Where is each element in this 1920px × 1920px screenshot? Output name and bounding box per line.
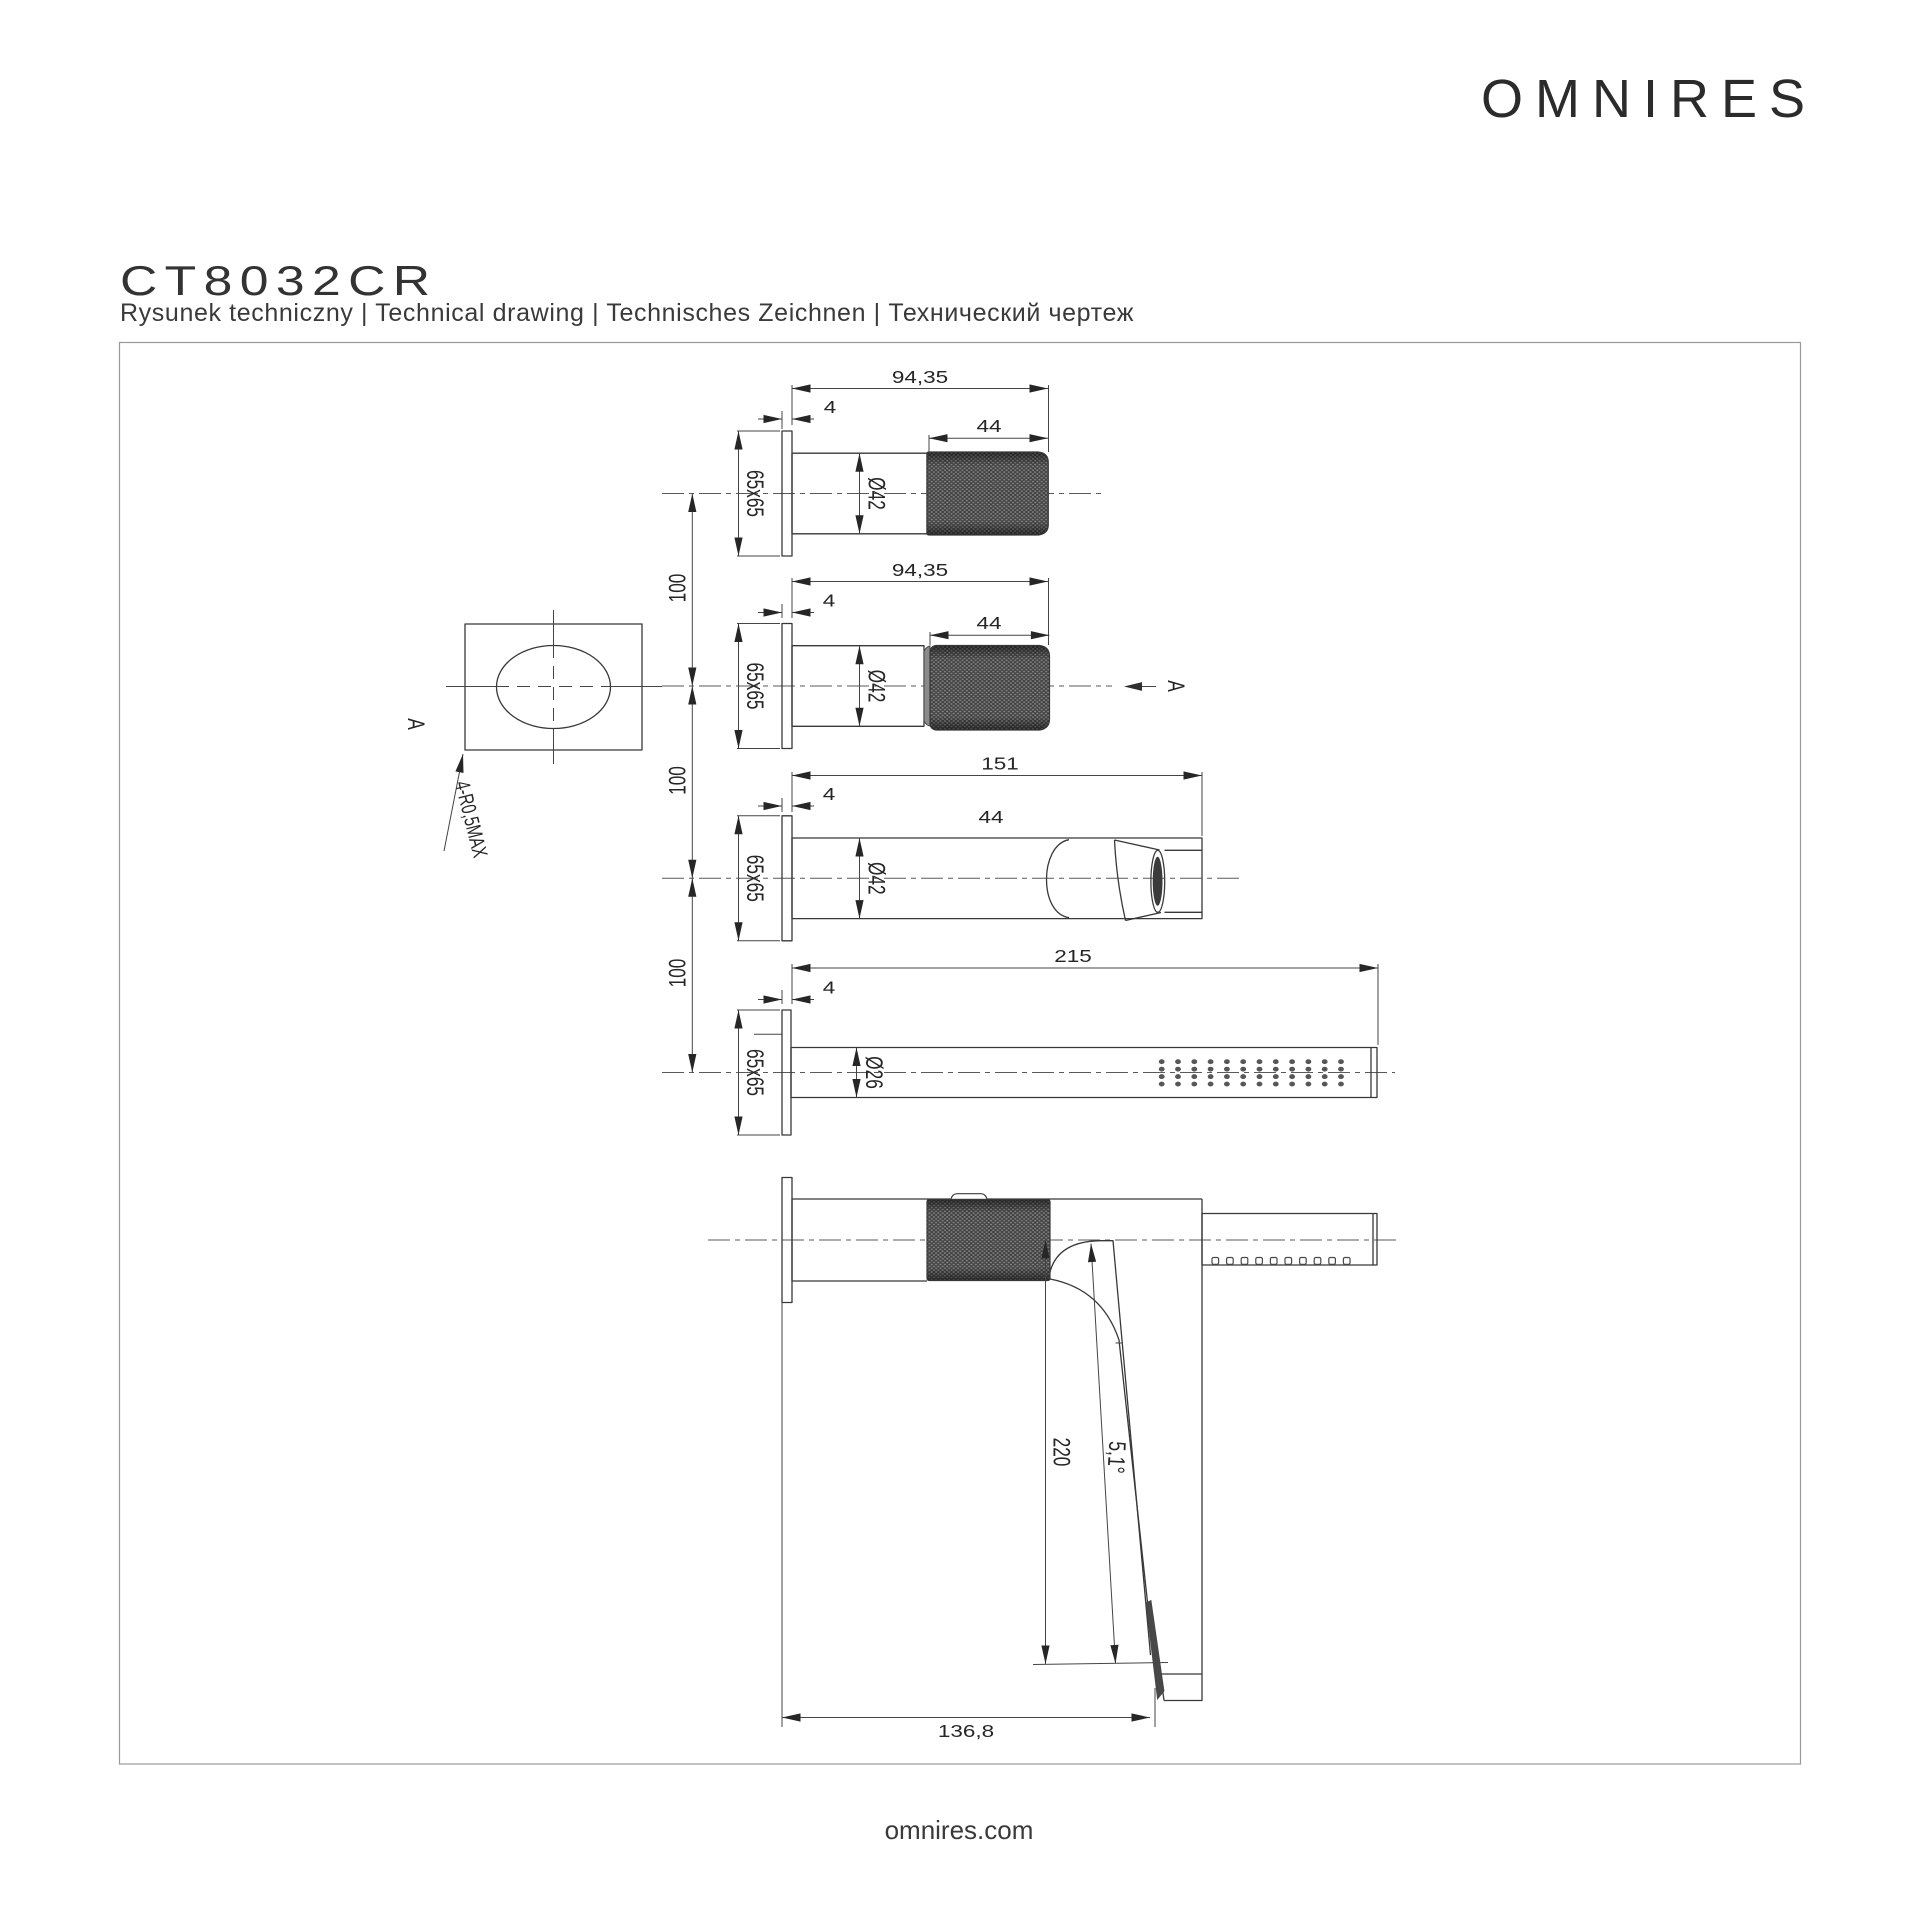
svg-text:65x65: 65x65 — [741, 1049, 767, 1096]
svg-text:5,1°: 5,1° — [1102, 1441, 1130, 1475]
svg-text:4-R0,5MAX: 4-R0,5MAX — [451, 778, 493, 860]
svg-text:100: 100 — [665, 574, 691, 603]
svg-text:Ø42: Ø42 — [863, 862, 889, 895]
svg-text:4: 4 — [823, 591, 836, 610]
svg-text:94,35: 94,35 — [892, 368, 948, 387]
svg-text:136,8: 136,8 — [938, 1722, 994, 1741]
svg-text:94,35: 94,35 — [892, 561, 948, 580]
svg-text:65x65: 65x65 — [741, 855, 767, 902]
svg-text:4: 4 — [823, 978, 836, 997]
svg-text:4: 4 — [824, 398, 837, 417]
svg-text:Ø42: Ø42 — [863, 477, 889, 510]
svg-text:65x65: 65x65 — [741, 470, 767, 517]
svg-text:100: 100 — [665, 766, 691, 795]
svg-text:65x65: 65x65 — [741, 662, 767, 709]
svg-text:A: A — [402, 718, 428, 730]
svg-text:4: 4 — [823, 785, 836, 804]
svg-text:100: 100 — [665, 959, 691, 988]
svg-text:220: 220 — [1048, 1438, 1074, 1467]
svg-text:151: 151 — [981, 754, 1019, 773]
svg-text:Ø42: Ø42 — [863, 670, 889, 703]
svg-text:215: 215 — [1054, 947, 1092, 966]
svg-text:44: 44 — [976, 417, 1001, 436]
svg-text:A: A — [1162, 680, 1188, 692]
svg-text:44: 44 — [976, 614, 1001, 633]
svg-text:44: 44 — [978, 808, 1003, 827]
svg-text:Ø26: Ø26 — [860, 1056, 886, 1089]
